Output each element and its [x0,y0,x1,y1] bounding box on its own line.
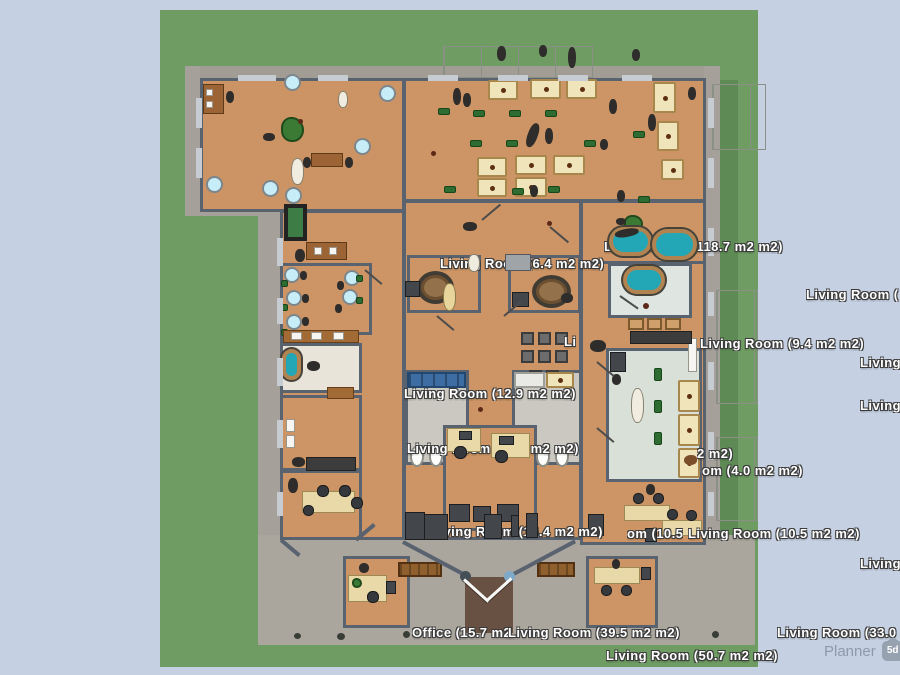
room-label: 2 m2) [697,446,733,461]
round-table[interactable] [286,290,302,306]
desk[interactable] [624,505,670,521]
room-label: Li [564,334,576,349]
person-figure[interactable] [646,484,655,495]
room-label: om (4.0 m2 m2) [702,463,803,478]
massage-mat[interactable] [678,380,700,412]
person-figure[interactable] [590,340,606,352]
person-figure[interactable] [463,93,471,107]
person-figure[interactable] [302,294,309,303]
exercise-mat[interactable] [545,110,557,117]
person-figure[interactable] [338,91,348,108]
dining-chair[interactable] [538,350,551,363]
round-table[interactable] [354,138,371,155]
round-table[interactable] [206,176,223,193]
room-label: Living [860,398,900,413]
shelf[interactable] [286,435,295,448]
person-figure[interactable] [561,293,573,303]
office-chair[interactable] [367,591,379,603]
massage-mat[interactable] [515,155,547,175]
marker-dot [337,633,345,640]
office-equipment[interactable] [484,514,502,539]
plant[interactable] [352,578,362,588]
marker-dot [431,151,436,156]
room-label: Living Room (12.9 m2 m2) [404,386,576,401]
bench[interactable] [398,562,442,577]
office-chair[interactable] [351,497,363,509]
window [558,75,588,81]
room-label: Living Room (50.7 m2 m2) [606,648,778,663]
window [708,98,714,128]
bathtub[interactable] [652,229,697,260]
exercise-mat[interactable] [654,432,662,445]
massage-mat[interactable] [661,159,684,180]
hot-tub[interactable] [532,275,571,308]
exercise-mat[interactable] [633,131,645,138]
massage-mat[interactable] [657,121,679,151]
pool-table[interactable] [284,204,307,241]
person-figure[interactable] [302,317,309,326]
person-figure[interactable] [300,271,307,280]
dining-chair[interactable] [538,332,551,345]
office-equipment[interactable] [526,513,538,538]
sidewalk [185,66,200,216]
small-mat[interactable] [665,318,681,330]
planner5d-watermark[interactable]: Planner 5d [824,641,900,661]
person-figure[interactable] [609,99,617,114]
round-table[interactable] [379,85,396,102]
office-equipment[interactable] [405,281,420,297]
exercise-mat[interactable] [356,275,363,282]
person-figure[interactable] [688,87,696,100]
round-table[interactable] [286,314,302,330]
desk[interactable] [306,242,347,260]
person-figure[interactable] [545,128,553,144]
exercise-mat[interactable] [638,196,650,203]
marker-dot [643,303,649,309]
room-label: om (10.5 [627,526,683,541]
office-chair[interactable] [601,585,612,596]
exercise-mat[interactable] [584,140,596,147]
window [622,75,652,81]
office-equipment[interactable] [459,431,472,440]
office-chair[interactable] [667,509,678,520]
person-figure[interactable] [539,45,547,57]
person-figure[interactable] [648,114,656,131]
person-figure[interactable] [497,46,506,61]
counter[interactable] [306,457,356,471]
pergola-frame [712,84,766,150]
small-mat[interactable] [647,318,662,330]
office-equipment[interactable] [405,512,425,540]
window [277,420,283,448]
window [708,292,714,316]
room-label: Living Room ( [806,287,899,302]
office-chair[interactable] [686,510,697,521]
person-figure[interactable] [337,281,344,290]
massage-mat[interactable] [566,79,597,99]
person-figure[interactable] [453,88,461,105]
marker-dot [298,119,303,124]
exercise-mat[interactable] [444,186,456,193]
papers[interactable] [291,332,302,340]
shelf[interactable] [286,419,295,432]
office-chair[interactable] [454,446,467,459]
exercise-mat[interactable] [654,400,662,413]
exercise-mat[interactable] [470,140,482,147]
dining-chair[interactable] [521,350,534,363]
massage-mat[interactable] [553,155,585,175]
person-figure[interactable] [600,139,608,150]
papers[interactable] [311,332,322,340]
bench[interactable] [537,562,575,577]
office-chair[interactable] [653,493,664,504]
desk[interactable] [594,567,640,584]
dining-chair[interactable] [521,332,534,345]
office-equipment[interactable] [424,514,448,540]
window [498,75,528,81]
person-figure[interactable] [307,361,320,371]
exercise-mat[interactable] [281,280,288,287]
office-equipment[interactable] [511,515,519,537]
person-figure[interactable] [335,304,342,313]
dining-chair[interactable] [555,350,568,363]
bathtub[interactable] [623,266,665,294]
office-chair[interactable] [303,505,314,516]
person-figure[interactable] [288,478,298,493]
room-label: Living Room (39.5 m2 m2) [508,625,680,640]
massage-mat[interactable] [678,414,700,446]
window [277,358,283,386]
exercise-mat[interactable] [506,140,518,147]
office-chair[interactable] [633,493,644,504]
marker-dot [712,631,719,638]
papers[interactable] [333,332,344,340]
massage-mat[interactable] [477,178,507,197]
window [708,158,714,188]
person-figure[interactable] [612,559,620,569]
person-figure[interactable] [345,157,353,168]
person-figure[interactable] [530,185,538,197]
office-equipment[interactable] [641,567,651,580]
massage-mat[interactable] [488,80,518,100]
papers[interactable] [206,89,213,96]
person-figure[interactable] [568,47,576,68]
person-figure[interactable] [359,563,369,573]
window [277,238,283,266]
room-label: Living Room (33.0 m2 m2) [777,625,900,640]
window [238,75,276,81]
window [277,298,283,324]
office-equipment[interactable] [499,436,514,445]
counter[interactable] [630,331,692,344]
planner5d-logo-icon: 5d [882,641,900,661]
window [196,148,202,178]
person-figure[interactable] [632,49,640,61]
exercise-mat[interactable] [473,110,485,117]
person-figure[interactable] [616,218,626,225]
round-table[interactable] [284,74,301,91]
window [277,492,283,516]
marker-dot [547,221,552,226]
office-equipment[interactable] [449,504,470,522]
window [708,362,714,390]
exercise-mat[interactable] [654,368,662,381]
washing-machine[interactable] [505,254,531,271]
papers[interactable] [329,247,337,255]
person-figure[interactable] [468,254,480,272]
window [428,75,458,81]
desk[interactable] [311,153,343,167]
person-figure[interactable] [443,283,456,311]
bathtub[interactable] [282,349,301,380]
room-label: Office (15.7 m2 m2) [412,625,513,640]
person-figure[interactable] [631,388,644,423]
person-figure[interactable] [617,190,625,202]
person-figure[interactable] [463,222,477,231]
office-chair[interactable] [339,485,351,497]
person-figure[interactable] [295,249,305,262]
pet-figure[interactable] [684,455,697,465]
massage-mat[interactable] [653,82,676,113]
window [708,492,714,516]
office-equipment[interactable] [610,352,626,372]
office-chair[interactable] [621,585,632,596]
marker-dot [478,407,483,412]
marker-dot [294,633,301,639]
round-table[interactable] [262,180,279,197]
exercise-mat[interactable] [509,110,521,117]
person-figure[interactable] [226,91,234,103]
papers[interactable] [206,101,213,108]
watermark-label: Planner [824,643,876,660]
marker-dot [403,631,410,638]
massage-mat[interactable] [530,79,561,99]
exercise-mat[interactable] [438,108,450,115]
office-equipment[interactable] [386,581,396,594]
papers[interactable] [314,247,322,255]
person-figure[interactable] [263,133,275,141]
room-label: Living Room (9.4 m2 m2) [700,336,864,351]
counter[interactable] [327,387,354,399]
window [196,98,202,128]
floor-plan-canvas: Living Room (118.7 m2 m2)Living Room (6.… [0,0,900,675]
office-chair[interactable] [317,485,329,497]
room-label: Living [860,556,900,571]
room-label: Living Room (10.5 m2 m2) [688,526,860,541]
exercise-mat[interactable] [512,188,524,195]
exercise-mat[interactable] [548,186,560,193]
exercise-mat[interactable] [356,297,363,304]
massage-mat[interactable] [477,157,507,177]
person-figure[interactable] [292,457,305,467]
round-table[interactable] [285,187,302,204]
room-label: Living [860,355,900,370]
small-mat[interactable] [628,318,644,330]
window [318,75,348,81]
office-chair[interactable] [495,450,508,463]
person-figure[interactable] [303,157,311,168]
